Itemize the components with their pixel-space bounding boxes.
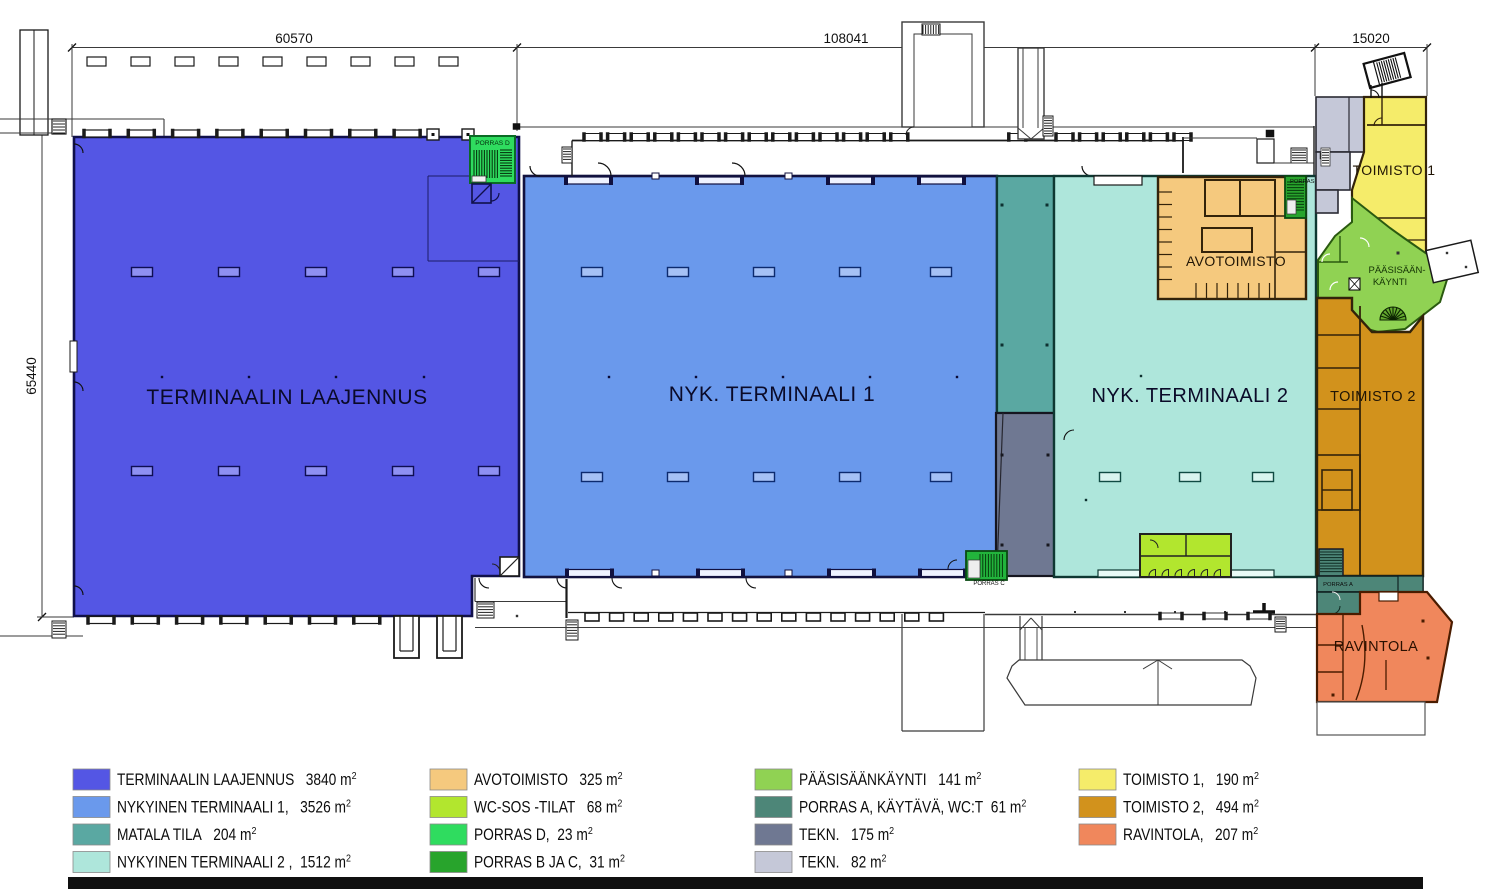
svg-text:TOIMISTO 2: TOIMISTO 2: [1330, 389, 1416, 405]
svg-text:TEKN. 175 m2: TEKN. 175 m2: [799, 826, 894, 845]
svg-text:TOIMISTO 1: TOIMISTO 1: [1353, 162, 1436, 178]
svg-text:RAVINTOLA: RAVINTOLA: [1334, 639, 1418, 655]
svg-text:PORRAS B JA C, 31 m2: PORRAS B JA C, 31 m2: [474, 853, 625, 872]
svg-text:WC-SOS -TILAT 68 m2: WC-SOS -TILAT 68 m2: [474, 798, 622, 817]
svg-text:TEKN. 82 m2: TEKN. 82 m2: [799, 853, 887, 872]
svg-text:TOIMISTO 2, 494 m2: TOIMISTO 2, 494 m2: [1123, 798, 1259, 817]
svg-text:AVOTOIMISTO: AVOTOIMISTO: [1186, 253, 1286, 269]
svg-text:TERMINAALIN LAAJENNUS 3840 m: TERMINAALIN LAAJENNUS 3840 m2: [117, 771, 357, 790]
svg-text:PORRAS A: PORRAS A: [1323, 582, 1353, 588]
svg-text:PÄÄSISÄÄNKÄYNTI 141 m2: PÄÄSISÄÄNKÄYNTI 141 m2: [799, 771, 981, 790]
svg-text:TERMINAALIN LAAJENNUS: TERMINAALIN LAAJENNUS: [146, 386, 427, 409]
svg-text:RAVINTOLA, 207 m2: RAVINTOLA, 207 m2: [1123, 826, 1258, 845]
svg-text:NYKYINEN TERMINAALI 1, 3526: NYKYINEN TERMINAALI 1, 3526 m2: [117, 798, 351, 817]
svg-text:NYK. TERMINAALI 2: NYK. TERMINAALI 2: [1091, 385, 1288, 407]
svg-text:108041: 108041: [823, 31, 868, 46]
svg-text:PORRAS C: PORRAS C: [973, 581, 1005, 587]
svg-text:AVOTOIMISTO 325 m2: AVOTOIMISTO 325 m2: [474, 771, 623, 790]
svg-text:PORRAS D, 23 m2: PORRAS D, 23 m2: [474, 826, 593, 845]
svg-text:KÄYNTI: KÄYNTI: [1373, 277, 1407, 288]
svg-text:60570: 60570: [275, 31, 313, 46]
svg-text:NYKYINEN TERMINAALI 2 , 1512: NYKYINEN TERMINAALI 2 , 1512 m2: [117, 853, 351, 872]
svg-text:PÄÄSISÄÄN-: PÄÄSISÄÄN-: [1368, 265, 1425, 276]
svg-text:PORRAS A, KÄYTÄVÄ, WC:T 61 m2: PORRAS A, KÄYTÄVÄ, WC:T 61 m2: [799, 798, 1026, 817]
svg-text:65440: 65440: [24, 357, 39, 395]
svg-text:MATALA TILA 204 m2: MATALA TILA 204 m2: [117, 826, 257, 845]
svg-text:TOIMISTO 1, 190 m2: TOIMISTO 1, 190 m2: [1123, 771, 1259, 790]
svg-text:15020: 15020: [1352, 31, 1390, 46]
svg-text:PORRAS D: PORRAS D: [475, 140, 510, 147]
svg-text:NYK. TERMINAALI 1: NYK. TERMINAALI 1: [669, 383, 876, 406]
